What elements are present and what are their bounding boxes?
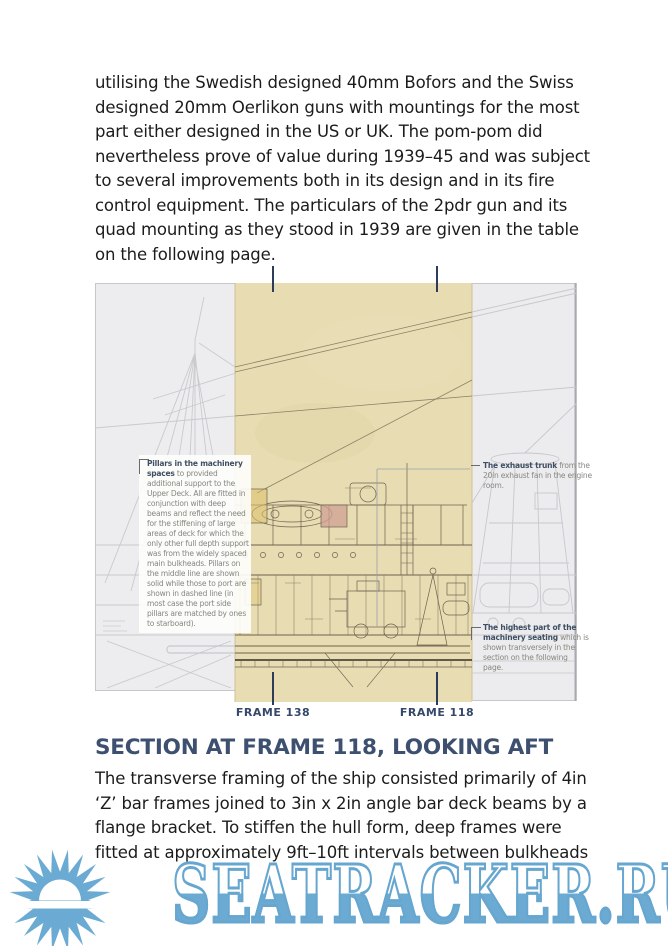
watermark: SEATRACKER.RU	[0, 838, 668, 946]
section-heading: SECTION AT FRAME 118, LOOKING AFT	[95, 735, 553, 760]
frame-138-top-tick	[272, 266, 274, 292]
frame-138-label: FRAME 138	[228, 706, 318, 719]
frame-118-top-tick	[436, 266, 438, 292]
sun-logo-icon	[2, 842, 118, 946]
annotation-exhaust-trunk: The exhaust trunk from the 20in exhaust …	[483, 461, 595, 491]
ship-profile-figure: Pillars in the machinery spaces to provi…	[95, 283, 577, 723]
paragraph-guns: utilising the Swedish designed 40mm Bofo…	[95, 71, 595, 267]
annotation-pillars: Pillars in the machinery spaces to provi…	[139, 455, 251, 633]
book-page: utilising the Swedish designed 40mm Bofo…	[0, 0, 668, 946]
frame-118-label: FRAME 118	[392, 706, 482, 719]
annotation-machinery-seating: The highest part of the machinery seatin…	[483, 623, 589, 673]
frame-118-bottom-tick	[436, 672, 438, 705]
annotation-pillars-body: to provided additional support to the Up…	[147, 469, 249, 628]
watermark-text: SEATRACKER.RU	[172, 856, 668, 936]
frame-138-bottom-tick	[272, 672, 274, 705]
annotation-exhaust-lead: The exhaust trunk	[483, 461, 557, 470]
